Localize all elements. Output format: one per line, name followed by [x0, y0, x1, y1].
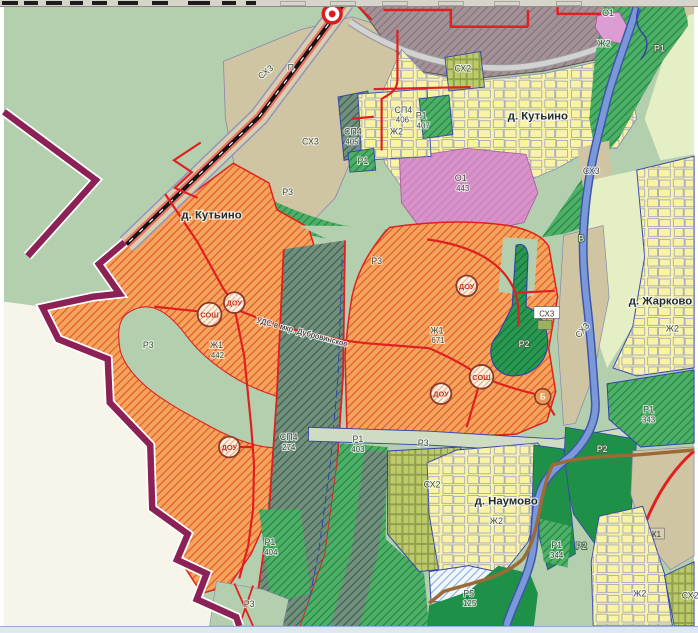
zone-label-k1: К1 [652, 530, 662, 539]
zone-num-405: 405 [345, 137, 359, 146]
toolbar-fragment [188, 1, 210, 5]
toolbar-fragment [222, 1, 236, 5]
zone-num-671: 671 [431, 336, 445, 345]
school-label: СОШ [200, 310, 218, 319]
toolbar-fragment [92, 1, 107, 5]
zone-label-zh1-east: Ж1 [430, 325, 443, 335]
village-label-kutino: д. Кутьино [508, 111, 568, 123]
horizontal-scrollbar[interactable] [0, 626, 698, 633]
toolbar-fragment [330, 1, 356, 6]
toolbar-fragment [494, 1, 520, 6]
sx3-small-square [538, 320, 552, 329]
zone-label-r2-park: Р2 [519, 339, 530, 349]
zone-label-r2-east: Р2 [597, 444, 608, 454]
toolbar-fragment [246, 1, 256, 5]
toolbar-fragment [152, 1, 168, 5]
zone-num-443: 443 [456, 184, 470, 193]
kindergarten-symbol: ДОУ [219, 437, 240, 458]
zone-label-sx3-river: СХ3 [583, 166, 600, 176]
zone-label-sx3-box: СХ3 [539, 310, 555, 319]
zone-label-zh2-ne: Ж2 [598, 39, 611, 49]
zone-label-zh2-cluster: Ж2 [390, 127, 403, 137]
zone-label-r1-ne: Р1 [654, 43, 665, 53]
village-label-zharkovo: д. Жарково [629, 296, 692, 308]
zone-label-r2-west: Р2 [576, 541, 587, 551]
zone-label-p: П [288, 62, 294, 72]
village-label-naumovo: д. Наумово [475, 495, 538, 507]
zone-label-r1-small: Р1 [357, 156, 368, 166]
zone-num-404: 404 [264, 548, 278, 557]
toolbar-fragment [2, 1, 18, 5]
kindergarten-label: ДОУ [459, 282, 475, 291]
zone-label-r1-407: Р1 [416, 111, 427, 121]
kindergarten-symbol: ДОУ [456, 275, 477, 296]
toolbar-fragment [70, 1, 83, 5]
zone-label-r1-404: Р1 [264, 537, 275, 547]
station-symbol [323, 7, 341, 23]
toolbar-fragment [382, 1, 408, 6]
kindergarten-symbol: ДОУ [431, 383, 452, 404]
zone-label-sx3: СХ3 [302, 136, 319, 146]
school-symbol: СОШ [470, 365, 494, 389]
bath-symbol: Б [535, 389, 551, 405]
zone-label-r1-403: Р1 [352, 434, 363, 444]
zone-num-407: 407 [417, 122, 430, 131]
toolbar-strip[interactable] [0, 0, 698, 7]
zone-label-o1-ne: О1 [602, 8, 614, 18]
zone-label-v: В [578, 233, 584, 243]
zone-label-r3-wedge: Р3 [371, 256, 382, 266]
zone-label-zh1-west: Ж1 [210, 340, 223, 350]
toolbar-fragment [24, 1, 38, 5]
zone-label-sx2: СХ2 [454, 63, 471, 73]
kindergarten-symbol: ДОУ [224, 292, 245, 313]
zone-num-403: 403 [351, 445, 365, 454]
kindergarten-label: ДОУ [222, 443, 238, 452]
zone-label-r3: Р3 [282, 187, 293, 197]
zone-num-274: 274 [282, 443, 296, 452]
village-label-kutino-west: д. Кутьино [181, 210, 241, 222]
kindergarten-label: ДОУ [433, 390, 449, 399]
school-label: СОШ [472, 373, 490, 382]
zone-num-125: 125 [463, 599, 477, 608]
zone-label-sp4-405: СП4 [344, 127, 362, 137]
zone-label-o1-443: О1 [455, 173, 467, 183]
zone-label-sx2-naumovo: СХ2 [424, 480, 441, 490]
zone-label-zh2-naumovo: Ж2 [490, 516, 503, 526]
zone-label-r3-pocket: Р3 [143, 340, 154, 350]
zone-label-r5: Р5 [463, 588, 474, 598]
map-window: СОШ ДОУ ДОУ СОШ ДОУ ДОУ [0, 0, 698, 633]
zone-label-zh2-se: Ж2 [633, 588, 646, 598]
toolbar-fragment [556, 1, 582, 6]
zone-label-zh2-zharkovo: Ж2 [666, 323, 679, 333]
map-canvas[interactable]: СОШ ДОУ ДОУ СОШ ДОУ ДОУ [0, 7, 698, 626]
zone-num-343: 343 [642, 415, 656, 424]
zone-label-sx2-se: СХ2 [682, 590, 698, 600]
toolbar-fragment [280, 1, 306, 6]
zone-label-r1-343: Р1 [643, 404, 654, 414]
zone-label-sp4-274: СП4 [280, 432, 298, 442]
zone-num-344: 344 [550, 551, 564, 560]
zone-label-r3-mid: Р3 [418, 438, 429, 448]
zone-num-442: 442 [211, 351, 224, 360]
kindergarten-label: ДОУ [227, 299, 243, 308]
zone-label-r1-344: Р1 [551, 540, 562, 550]
toolbar-fragment [438, 1, 464, 6]
toolbar-fragment [46, 1, 62, 5]
zone-label-sp4-406: СП4 [395, 105, 413, 115]
bath-label: Б [540, 393, 546, 402]
zone-label-r3-bottom: Р3 [244, 599, 255, 609]
school-symbol: СОШ [198, 303, 222, 327]
zone-num-406: 406 [396, 116, 410, 125]
toolbar-fragment [118, 1, 138, 5]
